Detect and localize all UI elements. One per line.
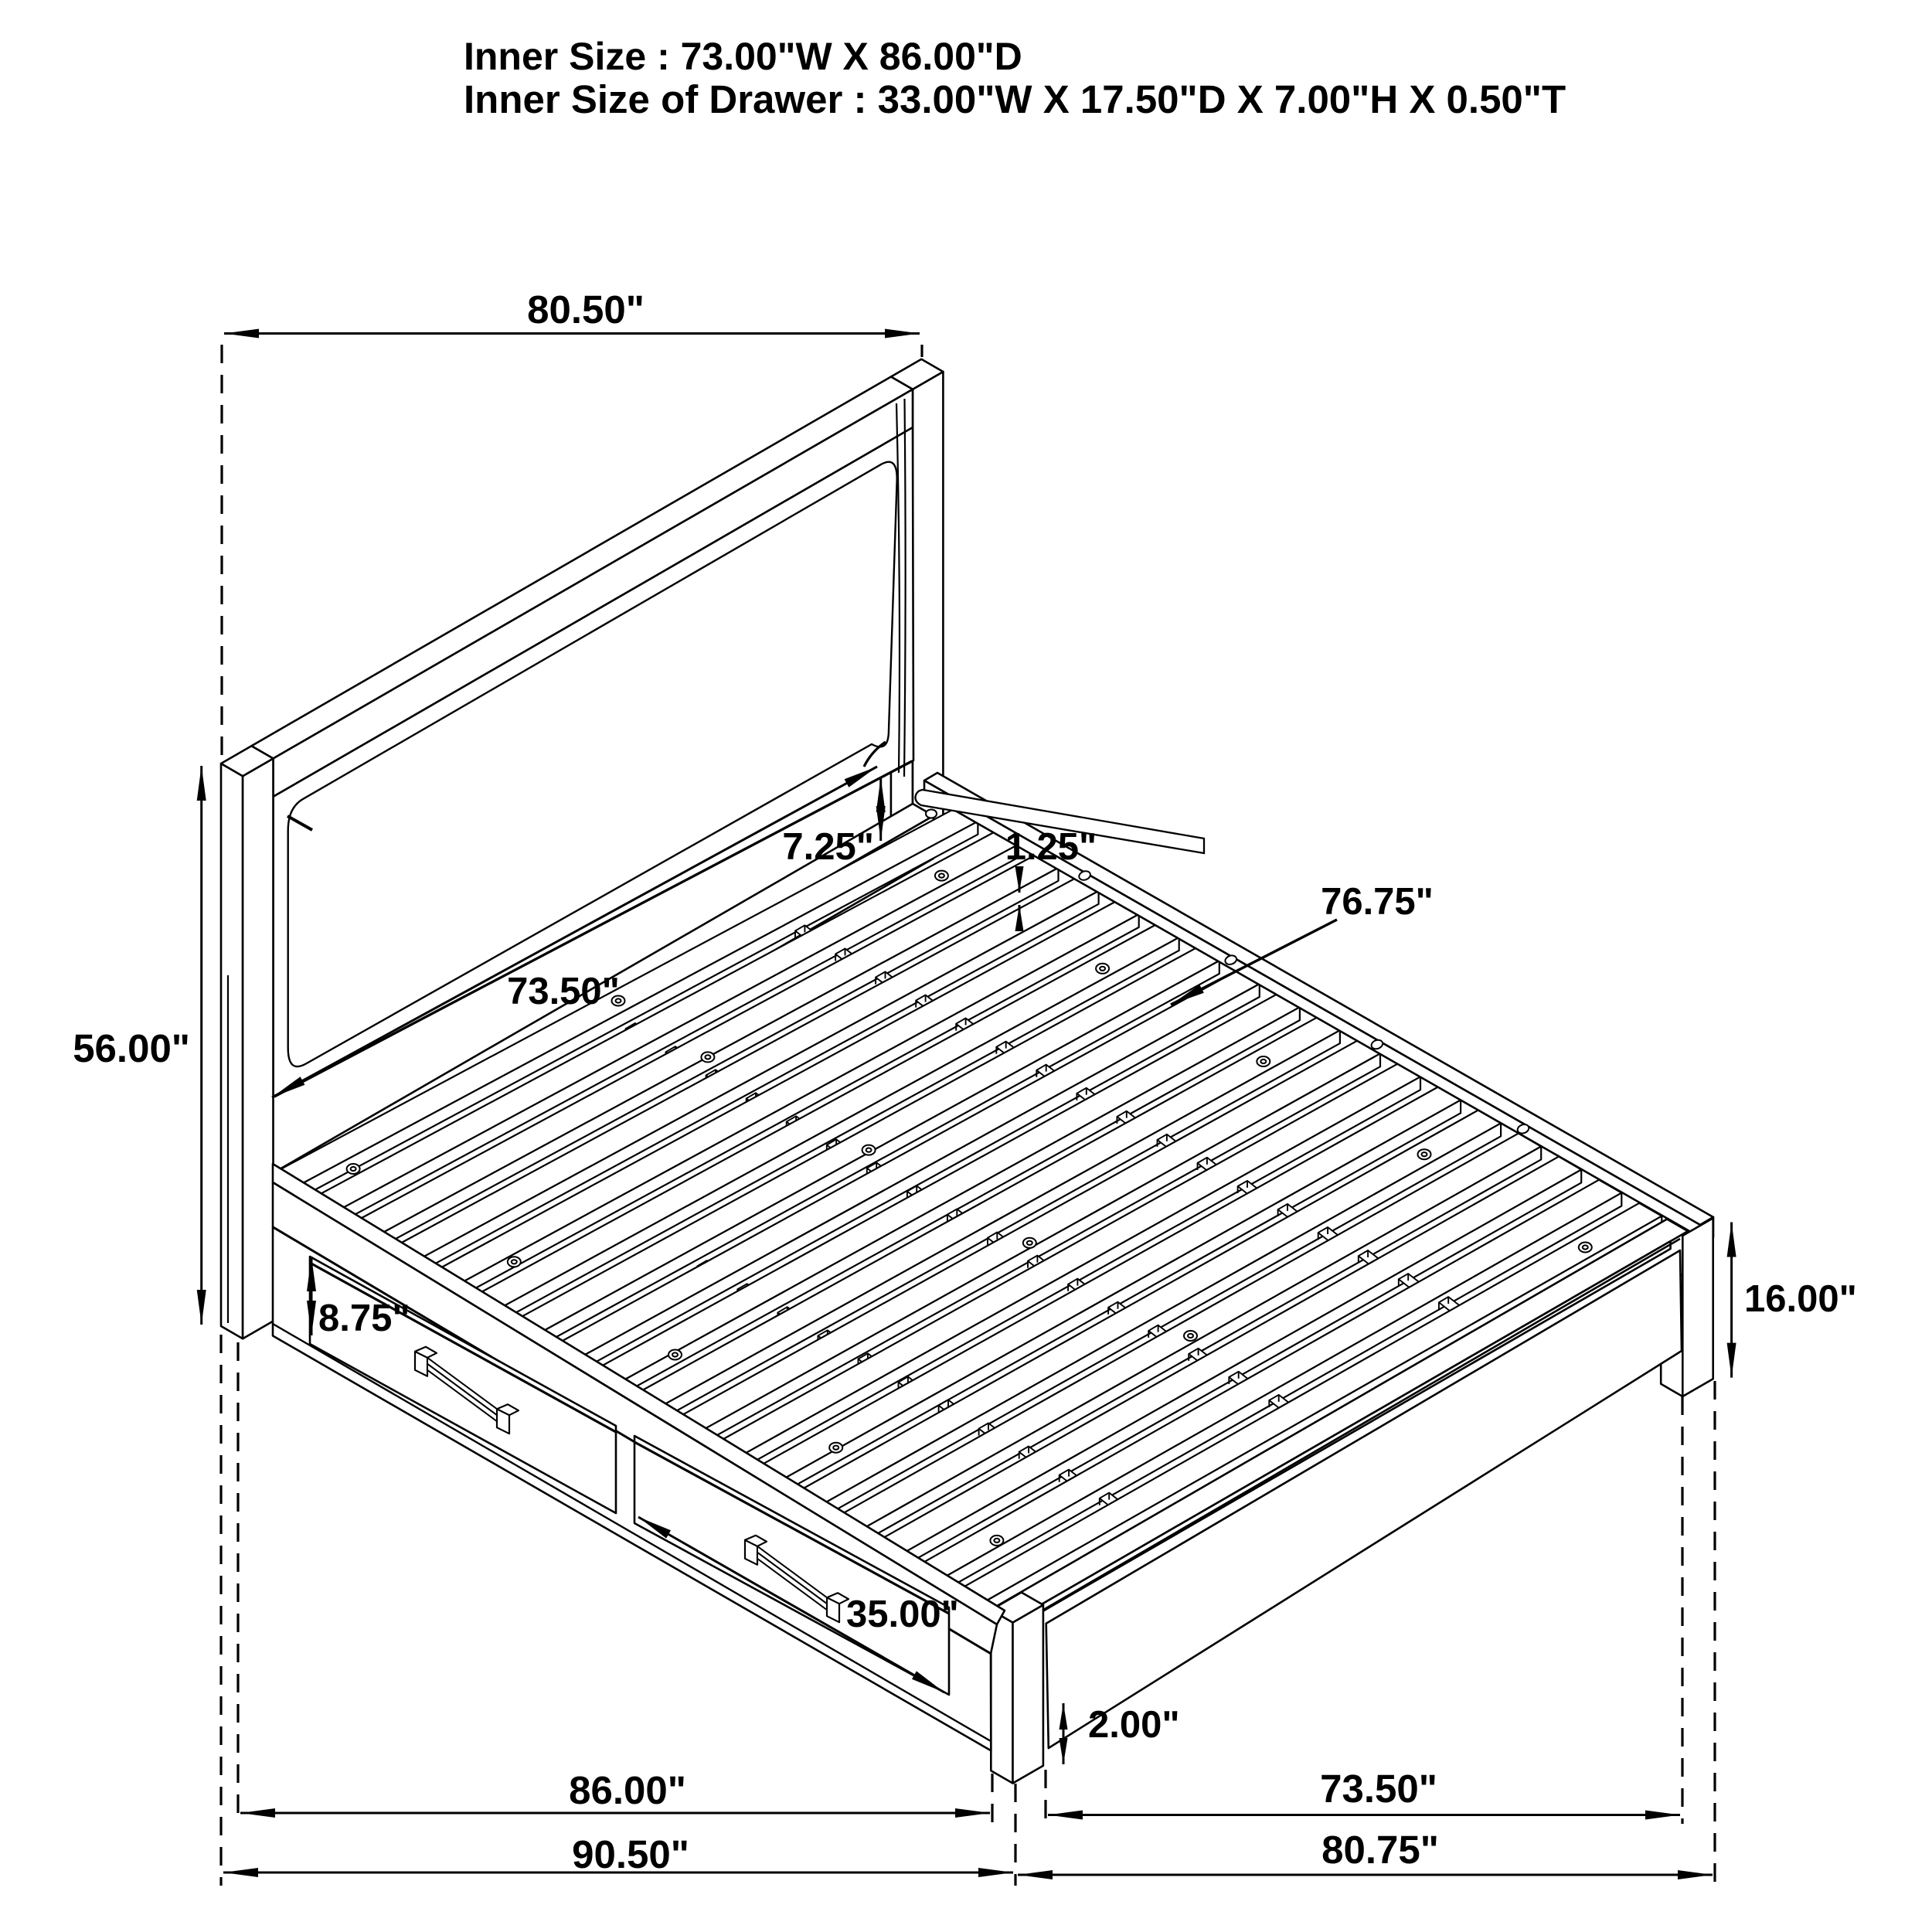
svg-text:7.25": 7.25" [782,826,874,868]
svg-text:90.50": 90.50" [572,1832,689,1876]
svg-text:80.75": 80.75" [1321,1828,1439,1872]
svg-text:56.00": 56.00" [73,1026,190,1070]
svg-text:86.00": 86.00" [569,1768,686,1812]
svg-text:2.00": 2.00" [1088,1704,1180,1746]
svg-text:16.00": 16.00" [1744,1278,1857,1320]
svg-text:76.75": 76.75" [1321,881,1434,923]
svg-text:73.50": 73.50" [1320,1767,1437,1811]
svg-text:35.00": 35.00" [846,1594,959,1635]
svg-text:Inner Size : 73.00"W X 86.00"D: Inner Size : 73.00"W X 86.00"D [464,35,1022,78]
svg-text:73.50": 73.50" [507,971,620,1012]
svg-text:8.75": 8.75" [318,1298,410,1339]
svg-text:80.50": 80.50" [527,287,645,332]
svg-text:Inner Size of Drawer : 33.00"W: Inner Size of Drawer : 33.00"W X 17.50"D… [464,77,1566,121]
svg-text:1.25": 1.25" [1005,826,1097,868]
